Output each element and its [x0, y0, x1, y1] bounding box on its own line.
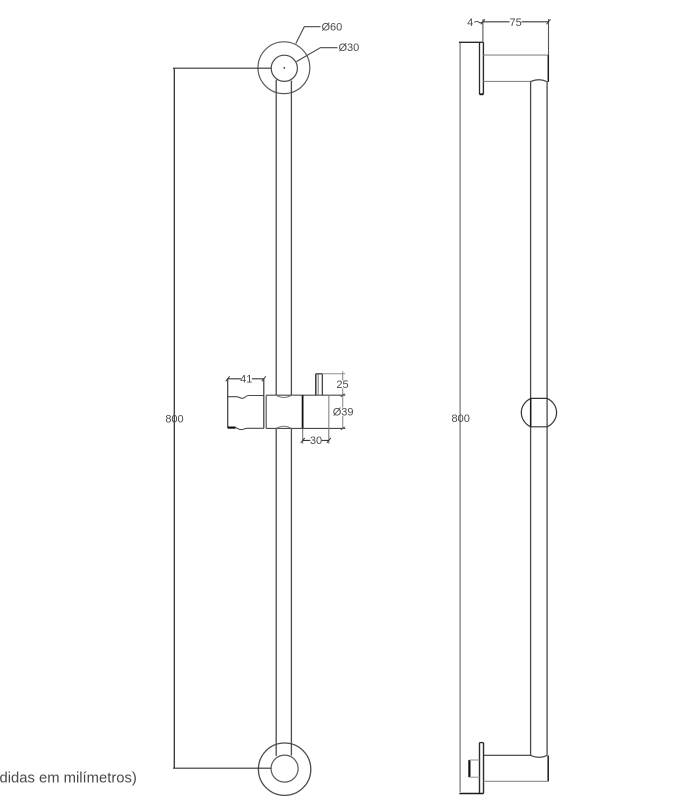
svg-text:25: 25: [336, 379, 348, 391]
svg-text:800: 800: [452, 413, 470, 425]
svg-text:Ø60: Ø60: [322, 21, 343, 33]
svg-text:75: 75: [509, 17, 521, 29]
svg-text:didas em milímetros): didas em milímetros): [0, 770, 137, 786]
svg-text:Ø30: Ø30: [339, 42, 360, 54]
svg-text:Ø39: Ø39: [333, 407, 354, 419]
svg-text:4: 4: [467, 17, 473, 29]
svg-text:800: 800: [165, 413, 183, 425]
svg-text:30: 30: [310, 435, 322, 447]
svg-text:41: 41: [240, 374, 252, 386]
